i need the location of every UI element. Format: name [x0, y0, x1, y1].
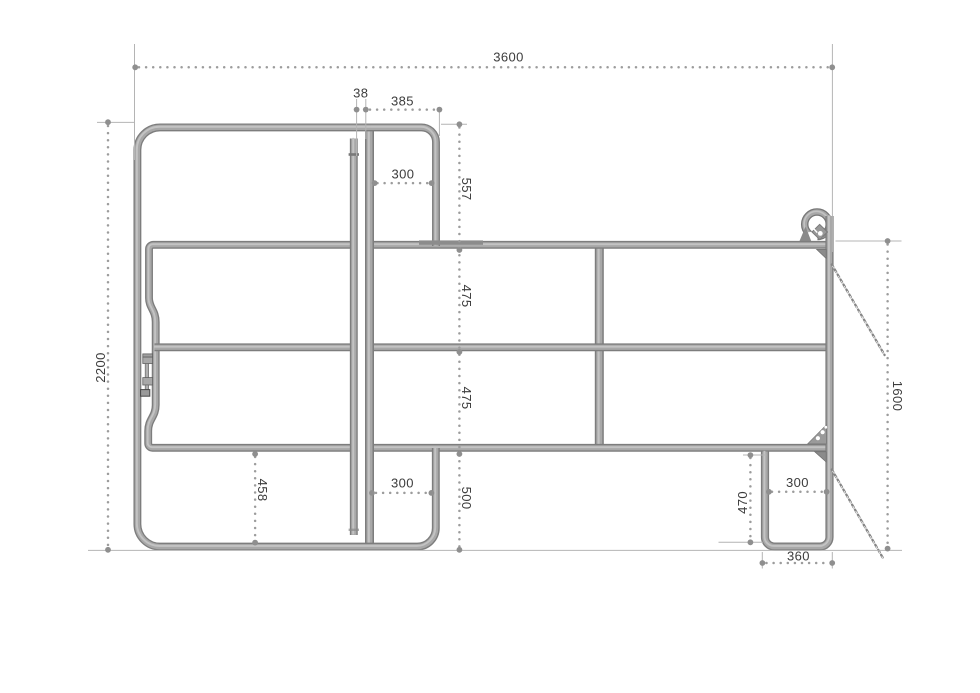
svg-text:300: 300	[392, 167, 415, 182]
svg-text:2200: 2200	[93, 352, 108, 383]
svg-text:458: 458	[255, 479, 270, 502]
svg-text:38: 38	[353, 85, 368, 100]
svg-text:475: 475	[459, 285, 474, 308]
svg-text:385: 385	[391, 94, 414, 109]
svg-text:300: 300	[786, 475, 809, 490]
svg-text:500: 500	[459, 487, 474, 510]
svg-text:300: 300	[391, 476, 414, 491]
svg-text:3600: 3600	[493, 50, 524, 65]
svg-text:557: 557	[459, 178, 474, 201]
svg-text:470: 470	[735, 491, 750, 514]
svg-text:360: 360	[787, 549, 810, 564]
svg-text:1600: 1600	[890, 381, 905, 412]
svg-text:475: 475	[459, 387, 474, 410]
